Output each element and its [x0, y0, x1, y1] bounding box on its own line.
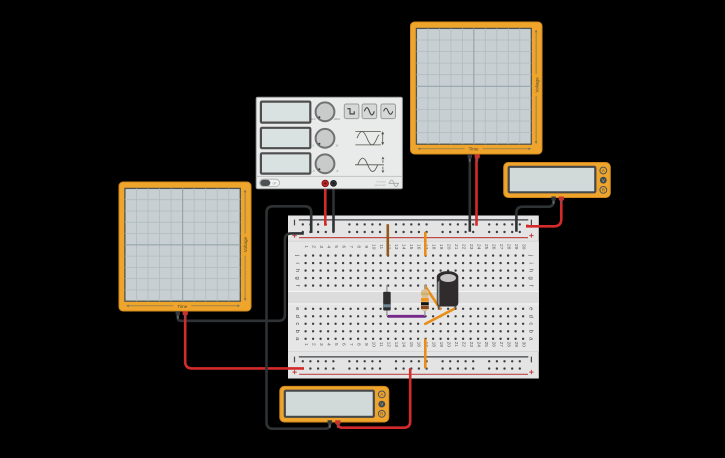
svg-text:c: c [528, 322, 534, 325]
svg-text:10: 10 [371, 244, 377, 250]
svg-text:b: b [294, 330, 300, 333]
svg-text:29: 29 [513, 244, 519, 250]
svg-text:off: off [272, 182, 276, 186]
svg-text:30: 30 [521, 244, 527, 250]
svg-text:22: 22 [461, 342, 467, 348]
svg-text:28: 28 [506, 342, 512, 348]
svg-text:20: 20 [446, 244, 452, 250]
svg-text:2: 2 [311, 245, 317, 248]
svg-text:10: 10 [371, 342, 377, 348]
svg-text:3: 3 [318, 245, 324, 248]
svg-text:j: j [294, 254, 300, 256]
svg-text:g: g [294, 276, 300, 279]
svg-text:12: 12 [386, 342, 392, 348]
svg-text:13: 13 [393, 342, 399, 348]
svg-text:26: 26 [491, 244, 497, 250]
svg-text:23: 23 [468, 244, 474, 250]
svg-text:7: 7 [348, 245, 354, 248]
svg-text:15: 15 [408, 244, 414, 250]
svg-text:1: 1 [303, 245, 309, 248]
svg-text:Voltage: Voltage [535, 77, 540, 93]
svg-text:21: 21 [453, 342, 459, 348]
svg-text:14: 14 [401, 342, 407, 348]
svg-text:1MHz: 1MHz [333, 117, 340, 121]
svg-text:26: 26 [491, 342, 497, 348]
svg-text:19: 19 [438, 244, 444, 250]
svg-text:5: 5 [333, 343, 339, 346]
svg-text:i: i [528, 262, 534, 263]
svg-text:25: 25 [483, 244, 489, 250]
svg-text:7: 7 [348, 343, 354, 346]
svg-text:9: 9 [363, 245, 369, 248]
svg-text:j: j [528, 254, 534, 256]
svg-text:28: 28 [506, 244, 512, 250]
svg-text:d: d [528, 315, 534, 318]
svg-text:d: d [294, 315, 300, 318]
svg-text:15: 15 [408, 342, 414, 348]
svg-text:Time: Time [469, 146, 479, 151]
svg-text:27: 27 [498, 342, 504, 348]
svg-text:14: 14 [401, 244, 407, 250]
svg-text:19: 19 [438, 342, 444, 348]
svg-text:11: 11 [378, 244, 384, 249]
svg-text:18: 18 [431, 244, 437, 250]
svg-text:h: h [528, 269, 534, 272]
svg-text:h: h [294, 269, 300, 272]
svg-text:23: 23 [468, 342, 474, 348]
svg-text:8: 8 [356, 245, 362, 248]
svg-text:24: 24 [476, 342, 482, 348]
svg-text:1Hz: 1Hz [311, 117, 316, 121]
svg-text:11: 11 [378, 342, 384, 347]
svg-text:generator: generator [374, 183, 386, 187]
svg-text:29: 29 [513, 342, 519, 348]
svg-text:i: i [294, 262, 300, 263]
svg-text:Time: Time [177, 304, 187, 309]
svg-text:Voltage: Voltage [243, 236, 248, 252]
svg-text:1: 1 [303, 343, 309, 346]
svg-text:16: 16 [416, 342, 422, 348]
svg-text:21: 21 [453, 244, 459, 250]
svg-text:20: 20 [446, 342, 452, 348]
svg-text:22: 22 [461, 244, 467, 250]
svg-text:16: 16 [416, 244, 422, 250]
svg-text:30: 30 [521, 342, 527, 348]
svg-text:b: b [528, 330, 534, 333]
svg-text:4: 4 [326, 245, 332, 248]
svg-text:27: 27 [498, 244, 504, 250]
svg-text:5: 5 [333, 245, 339, 248]
svg-text:e: e [528, 307, 534, 310]
svg-text:4: 4 [326, 343, 332, 346]
svg-text:c: c [294, 322, 300, 325]
svg-text:9: 9 [363, 343, 369, 346]
svg-text:8: 8 [356, 343, 362, 346]
svg-text:g: g [528, 276, 534, 279]
svg-text:2: 2 [311, 343, 317, 346]
svg-text:e: e [294, 307, 300, 310]
svg-text:6: 6 [341, 245, 347, 248]
svg-text:13: 13 [393, 244, 399, 250]
svg-text:18: 18 [431, 342, 437, 348]
svg-text:6: 6 [341, 343, 347, 346]
svg-text:24: 24 [476, 244, 482, 250]
svg-text:3: 3 [318, 343, 324, 346]
svg-text:25: 25 [483, 342, 489, 348]
